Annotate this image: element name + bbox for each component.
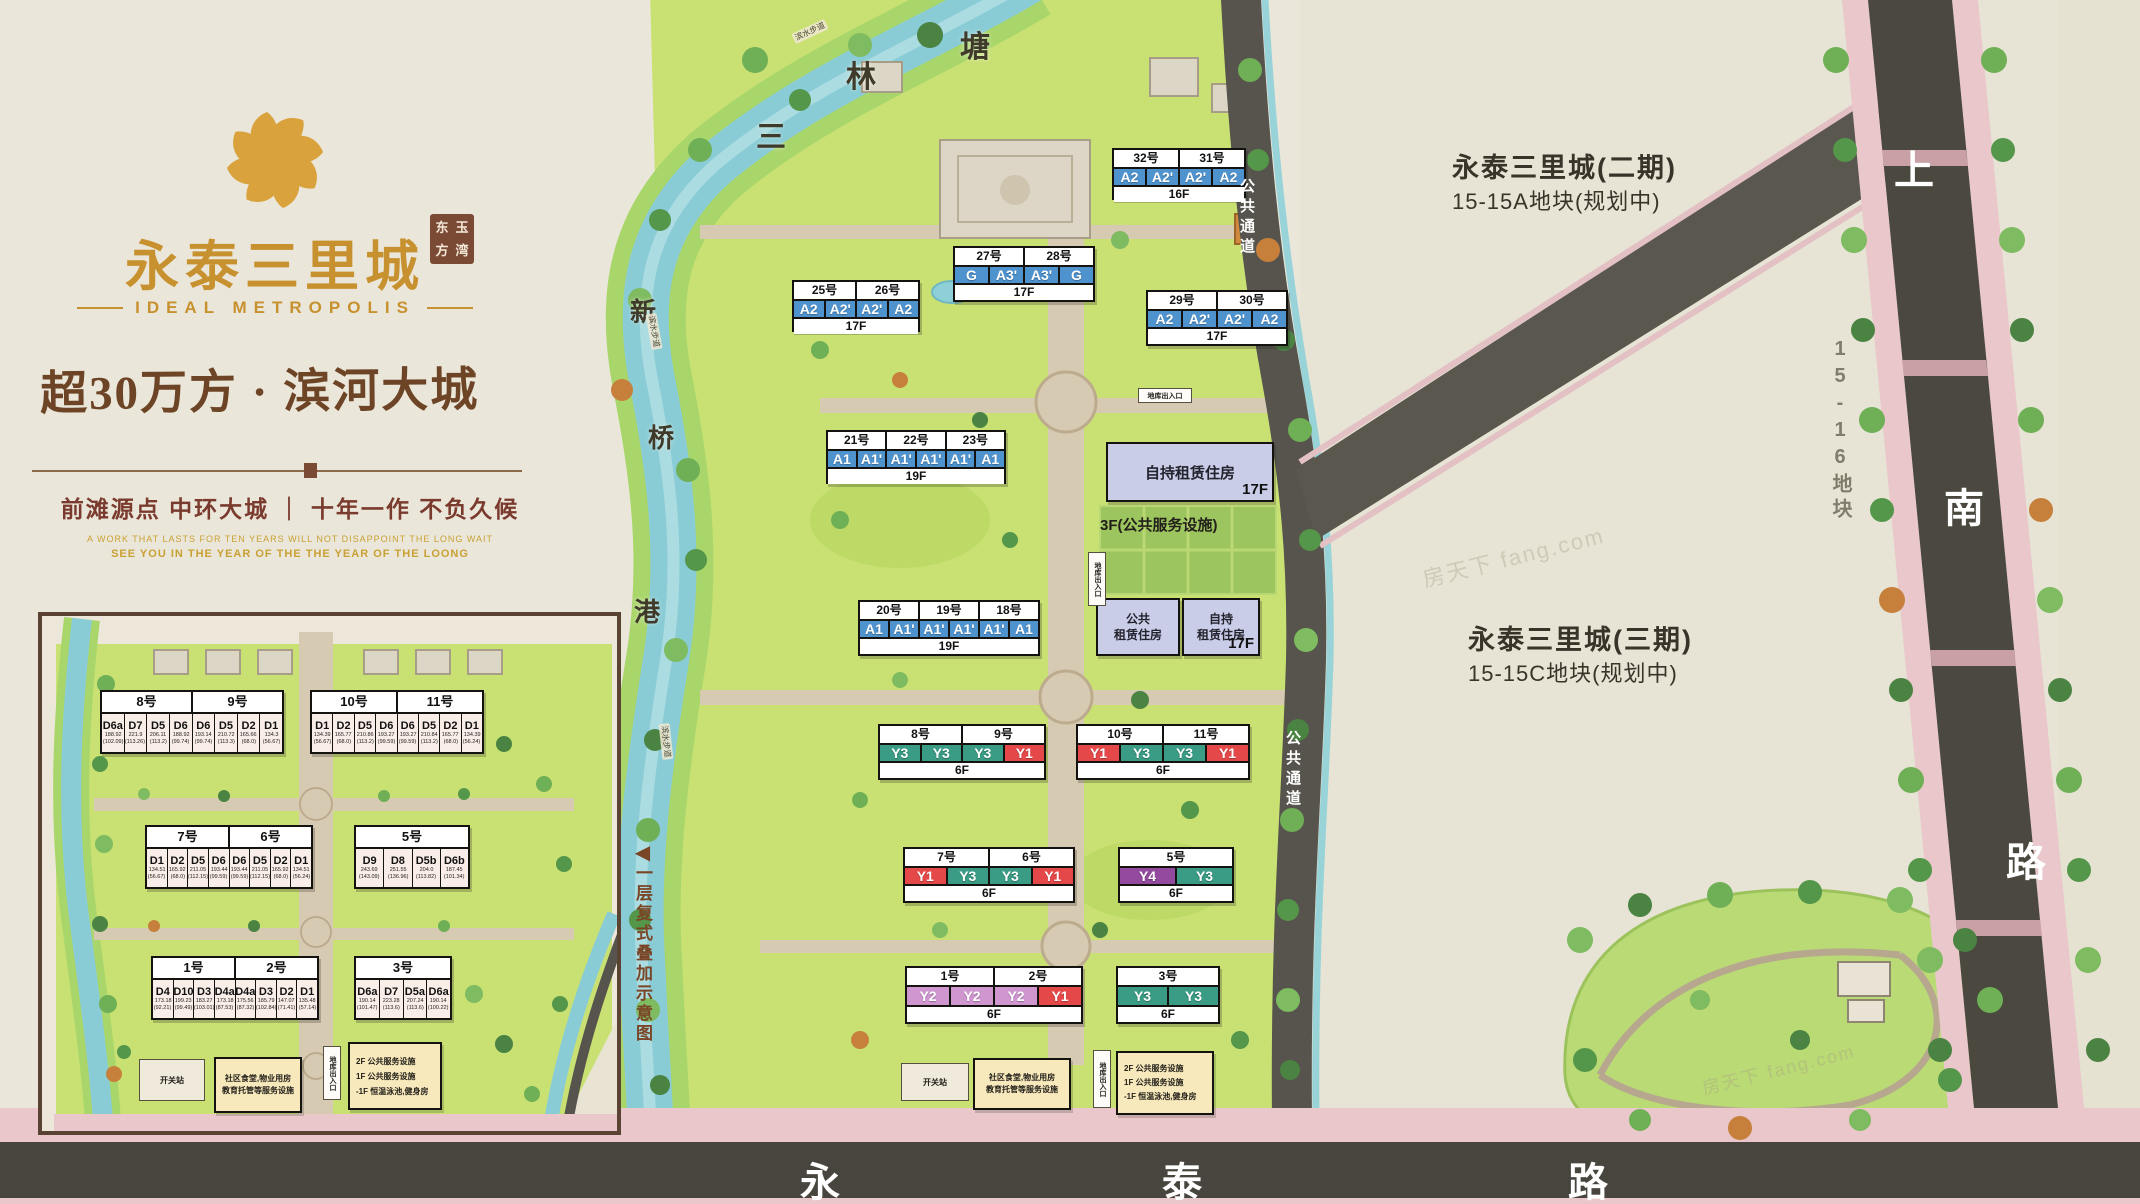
- unit-cell: G: [955, 267, 990, 283]
- seal-char: 玉: [455, 221, 468, 234]
- road-yongtai-char: 泰: [1162, 1150, 1202, 1204]
- building-number-label: 3号: [356, 958, 450, 978]
- unit-row: A2A2'A2'A2: [1148, 311, 1286, 327]
- duplex-unit-cell: D5210.84(113.2): [419, 714, 440, 752]
- service-facility: 2F 公共服务设施 1F 公共服务设施 -1F 恒温泳池,健身房: [1116, 1051, 1214, 1115]
- unit-row: D6a190.14(101.47)D7223.28(113.6)D5a207.2…: [356, 980, 450, 1018]
- unit-inner-area: (102.84): [256, 1005, 276, 1011]
- tree: [1111, 231, 1129, 249]
- branding-panel: 永泰三里城 东 玉 方 湾 IDEAL METROPOLIS 超30万方 · 滨…: [0, 0, 620, 600]
- tree: [2018, 407, 2044, 433]
- unit-area: 204.0: [419, 867, 433, 873]
- unit-type: D5: [219, 720, 233, 732]
- building-number-row: 1号2号: [907, 968, 1081, 987]
- building-number-row: 7号6号: [147, 827, 311, 849]
- unit-inner-area: (113.82): [416, 874, 436, 880]
- unit-inner-area: (99.49): [175, 1005, 192, 1011]
- duplex-unit-cell: D7221.9(113.26): [125, 714, 148, 752]
- duplex-unit-cell: D4173.18(92.21): [153, 980, 174, 1018]
- plaza-circle: [1040, 671, 1092, 723]
- public-passage-label: 公共通道: [1282, 730, 1303, 810]
- building-number-label: 7号: [147, 827, 230, 847]
- tree: [536, 776, 552, 792]
- building-block-7号-6号: 7号6号Y1Y3Y3Y16F: [903, 847, 1075, 903]
- facility-line: 社区食堂,物业用房: [989, 1072, 1055, 1084]
- unit-inner-area: (99.59): [378, 739, 395, 745]
- unit-area: 210.84: [421, 732, 438, 738]
- tree: [138, 788, 150, 800]
- tree: [2086, 1038, 2110, 1062]
- unit-area: 251.55: [389, 867, 406, 873]
- unit-row: Y2Y2Y2Y1: [907, 987, 1081, 1005]
- arrow-left-icon: ◀: [635, 842, 650, 864]
- unit-cell: Y3: [1121, 745, 1164, 761]
- unit-row: D1134.39(56.67)D2165.77(68.0)D5210.86(11…: [312, 714, 482, 752]
- duplex-unit-cell: D1134.39(56.24): [462, 714, 482, 752]
- tree: [1181, 801, 1199, 819]
- unit-type: D2: [337, 720, 351, 732]
- park-building: [1838, 962, 1890, 996]
- unit-area: 211.05: [252, 867, 268, 873]
- unit-row: Y1Y3Y3Y1: [1078, 745, 1248, 761]
- duplex-unit-cell: D2165.77(68.0): [333, 714, 354, 752]
- unit-cell: G: [1060, 267, 1093, 283]
- unit-type: D6: [196, 720, 210, 732]
- inset-community-facility: 社区食堂,物业用房 教育托管等服务设施: [214, 1057, 302, 1113]
- building-number-label: 18号: [980, 602, 1038, 619]
- road-yongtai-char: 路: [1568, 1150, 1608, 1204]
- unit-cell: Y1: [905, 868, 948, 884]
- unit-cell: A1': [980, 621, 1010, 637]
- building-number-label: 8号: [102, 692, 193, 712]
- unit-area: 165.92: [272, 867, 289, 873]
- sidewalk-south-edge: [0, 1198, 2140, 1204]
- unit-row: Y4Y3: [1120, 868, 1232, 884]
- unit-cell: A2': [826, 301, 858, 317]
- unit-cell: Y3: [963, 745, 1005, 761]
- building-number-label: 26号: [857, 282, 918, 299]
- tree: [1938, 1068, 1962, 1092]
- building-number-row: 32号31号: [1114, 150, 1244, 169]
- rental-label: 自持租赁住房: [1145, 462, 1235, 483]
- inset-building-block-3号: 3号D6a190.14(101.47)D7223.28(113.6)D5a207…: [354, 956, 452, 1020]
- duplex-unit-cell: D10199.23(99.49): [174, 980, 195, 1018]
- lotus-logo-icon: [215, 100, 335, 220]
- facility-line: 2F 公共服务设施: [356, 1054, 416, 1069]
- unit-area: 187.45: [446, 867, 463, 873]
- unit-area: 223.28: [383, 998, 400, 1004]
- tree: [1231, 1031, 1249, 1049]
- unit-inner-area: (101.34): [444, 874, 465, 880]
- tree: [1288, 418, 1312, 442]
- unit-type: D2: [274, 855, 288, 867]
- unit-row: A2A2'A2'A2: [794, 301, 918, 317]
- tree: [688, 138, 712, 162]
- building-block-21号-22号-23号: 21号22号23号A1A1'A1'A1'A1'A119F: [826, 430, 1006, 484]
- tree: [1823, 47, 1849, 73]
- unit-type: D6a: [429, 986, 449, 998]
- unit-inner-area: (68.0): [443, 739, 457, 745]
- unit-inner-area: (87.53): [216, 1005, 233, 1011]
- unit-inner-area: (56.67): [262, 739, 279, 745]
- tree: [99, 995, 117, 1013]
- tree: [495, 1035, 513, 1053]
- duplex-unit-cell: D6a190.14(100.22): [427, 980, 450, 1018]
- unit-area: 165.66: [240, 732, 257, 738]
- duplex-unit-cell: D1134.51(56.67): [147, 849, 168, 887]
- duplex-unit-cell: D2165.66(68.0): [238, 714, 261, 752]
- unit-area: 135.48: [299, 998, 316, 1004]
- building-number-label: 6号: [230, 827, 311, 847]
- unit-inner-area: (113.3): [217, 739, 234, 745]
- unit-area: 188.92: [104, 732, 121, 738]
- tree: [1798, 880, 1822, 904]
- unit-inner-area: (103.01): [194, 1005, 214, 1011]
- building-number-row: 7号6号: [905, 849, 1073, 868]
- unit-area: 190.14: [359, 998, 376, 1004]
- unit-cell: A2': [1218, 311, 1253, 327]
- tree: [636, 818, 660, 842]
- floor-label: 6F: [1118, 1005, 1218, 1022]
- unit-row: Y3Y3: [1118, 987, 1218, 1005]
- plaza-circle: [1042, 922, 1090, 970]
- building-number-label: 32号: [1114, 150, 1180, 167]
- floor-label: 6F: [1078, 761, 1248, 778]
- unit-type: D6: [212, 855, 226, 867]
- facility-line: 1F 公共服务设施: [356, 1069, 416, 1084]
- building-number-label: 31号: [1180, 150, 1244, 167]
- unit-row: GA3'A3'G: [955, 267, 1093, 283]
- slogan: 前滩源点 中环大城 ｜ 十年一作 不负久候: [10, 490, 570, 524]
- building-number-label: 8号: [880, 726, 963, 743]
- inset-service-facility: 2F 公共服务设施 1F 公共服务设施 -1F 恒温泳池,健身房: [348, 1042, 442, 1110]
- phase2-title: 永泰三里城(二期): [1452, 146, 1677, 185]
- unit-cell: A1': [920, 621, 950, 637]
- tree: [458, 788, 470, 800]
- unit-cell: A2: [889, 301, 919, 317]
- unit-area: 206.11: [150, 732, 166, 738]
- unit-inner-area: (99.59): [399, 739, 416, 745]
- tree: [1131, 691, 1149, 709]
- building-number-label: 29号: [1148, 292, 1218, 309]
- unit-type: D1: [150, 855, 164, 867]
- building-block-27号-28号: 27号28号GA3'A3'G17F: [953, 246, 1095, 302]
- building-number-label: 19号: [920, 602, 980, 619]
- facility-line: 教育托管等服务设施: [222, 1085, 294, 1097]
- floor-label: 16F: [1114, 185, 1244, 202]
- tree: [148, 920, 160, 932]
- site-plan-poster: 永泰三里城 东 玉 方 湾 IDEAL METROPOLIS 超30万方 · 滨…: [0, 0, 2140, 1204]
- building-number-label: 2号: [995, 968, 1081, 985]
- unit-cell: Y2: [907, 987, 951, 1005]
- unit-type: D6: [232, 855, 246, 867]
- inset-cross-path: [94, 798, 574, 811]
- unit-inner-area: (68.0): [241, 739, 255, 745]
- unit-type: D7: [384, 986, 398, 998]
- unit-row: Y3Y3Y3Y1: [880, 745, 1044, 761]
- garage-entrance-label: 地库出入口: [1088, 552, 1106, 606]
- unit-cell: Y3: [990, 868, 1033, 884]
- tree: [852, 792, 868, 808]
- unit-type: D2: [443, 720, 457, 732]
- rental-floor: 17F: [1228, 636, 1254, 652]
- duplex-unit-cell: D2165.92(68.0): [271, 849, 292, 887]
- tree: [1991, 138, 2015, 162]
- facility-line: 1F 公共服务设施: [1124, 1076, 1184, 1090]
- unit-cell: Y2: [951, 987, 995, 1005]
- building-number-row: 10号11号: [1078, 726, 1248, 745]
- unit-type: D5a: [405, 986, 425, 998]
- unit-area: 210.72: [217, 732, 234, 738]
- rule-left: [77, 307, 123, 309]
- duplex-unit-cell: D4a173.18(87.53): [215, 980, 236, 1018]
- unit-area: 165.77: [442, 732, 459, 738]
- facility-line: 社区食堂,物业用房: [225, 1073, 291, 1085]
- project-subtitle: IDEAL METROPOLIS: [60, 298, 490, 318]
- facility-line: -1F 恒温泳池,健身房: [1124, 1090, 1196, 1104]
- tree: [1790, 1030, 1810, 1050]
- unit-area: 183.27: [196, 998, 213, 1004]
- building-number-label: 30号: [1218, 292, 1286, 309]
- building-number-row: 3号: [356, 958, 450, 980]
- phase3-title: 永泰三里城(三期): [1468, 618, 1693, 657]
- tree: [378, 790, 390, 802]
- unit-row: D1134.51(56.67)D2165.92(68.0)D5211.05(11…: [147, 849, 311, 887]
- facility-line: 教育托管等服务设施: [986, 1084, 1058, 1096]
- building-block-29号-30号: 29号30号A2A2'A2'A217F: [1146, 290, 1288, 346]
- building-block-3号: 3号Y3Y36F: [1116, 966, 1220, 1024]
- rental-label: 公共: [1126, 611, 1150, 627]
- tree: [789, 89, 811, 111]
- unit-type: D5b: [416, 855, 437, 867]
- building-number-row: 29号30号: [1148, 292, 1286, 311]
- rental-floor: 17F: [1242, 481, 1268, 498]
- floor-label: 19F: [828, 467, 1004, 484]
- building-number-row: 27号28号: [955, 248, 1093, 267]
- inset-building-block-7号-6号: 7号6号D1134.51(56.67)D2165.92(68.0)D5211.0…: [145, 825, 313, 889]
- unit-area: 147.07: [278, 998, 295, 1004]
- duplex-unit-cell: D6b187.45(101.34): [441, 849, 468, 887]
- unit-inner-area: (56.67): [313, 739, 330, 745]
- facility-line: -1F 恒温泳池,健身房: [356, 1084, 428, 1099]
- rule-right: [427, 307, 473, 309]
- duplex-unit-cell: D1134.3(56.67): [260, 714, 282, 752]
- tree: [92, 916, 108, 932]
- building-number-label: 25号: [794, 282, 857, 299]
- tree: [664, 638, 688, 662]
- tree: [1002, 532, 1018, 548]
- river-name-char: 塘: [960, 22, 990, 66]
- building-number-label: 23号: [947, 432, 1004, 449]
- tree: [2037, 587, 2063, 613]
- tagline-en-1: A WORK THAT LASTS FOR TEN YEARS WILL NOT…: [10, 534, 570, 544]
- duplex-unit-cell: D2165.77(68.0): [440, 714, 461, 752]
- unit-type: D6a: [357, 986, 377, 998]
- building-number-label: 5号: [1120, 849, 1232, 866]
- unit-cell: Y1: [1207, 745, 1248, 761]
- building-number-row: 25号26号: [794, 282, 918, 301]
- unit-cell: Y1: [1005, 745, 1045, 761]
- duplex-unit-cell: D2147.07(71.41): [277, 980, 298, 1018]
- duplex-unit-cell: D7223.28(113.6): [380, 980, 404, 1018]
- tree: [1889, 678, 1913, 702]
- building-block-20号-19号-18号: 20号19号18号A1A1'A1'A1'A1'A119F: [858, 600, 1040, 656]
- duplex-unit-cell: D6193.14(99.74): [193, 714, 216, 752]
- unit-type: D5: [422, 720, 436, 732]
- tree: [892, 672, 908, 688]
- unit-inner-area: (99.59): [231, 874, 248, 880]
- unit-type: D1: [315, 720, 329, 732]
- building-block-25号-26号: 25号26号A2A2'A2'A217F: [792, 280, 920, 332]
- unit-type: D6: [401, 720, 415, 732]
- inset-building-block-1号-2号: 1号2号D4173.18(92.21)D10199.23(99.49)D3183…: [151, 956, 319, 1020]
- unit-cell: Y2: [995, 987, 1039, 1005]
- unit-inner-area: (99.74): [172, 739, 189, 745]
- tree: [676, 458, 700, 482]
- unit-inner-area: (113.2): [356, 739, 373, 745]
- unit-area: 185.79: [257, 998, 274, 1004]
- unit-cell: A2': [1147, 169, 1180, 185]
- building-number-label: 9号: [963, 726, 1044, 743]
- tree: [650, 1075, 670, 1095]
- unit-type: D1: [300, 986, 314, 998]
- duplex-unit-cell: D6193.27(99.59): [398, 714, 419, 752]
- unit-cell: A2: [1253, 311, 1286, 327]
- unit-area: 190.14: [430, 998, 447, 1004]
- building-number-row: 1号2号: [153, 958, 317, 980]
- garage-entrance-label: 地库出入口: [1138, 388, 1192, 403]
- river-name-char: 桥: [648, 418, 674, 455]
- unit-cell: A1: [860, 621, 890, 637]
- unit-inner-area: (113.26): [125, 739, 145, 745]
- headline: 超30万方 · 滨河大城: [40, 350, 601, 424]
- tree: [1299, 529, 1321, 551]
- unit-inner-area: (68.0): [336, 739, 350, 745]
- tree: [1280, 1060, 1300, 1080]
- river-name-char: 港: [634, 592, 660, 629]
- brand-seal: 东 玉 方 湾: [430, 214, 474, 264]
- duplex-unit-cell: D6193.27(99.59): [376, 714, 397, 752]
- unit-inner-area: (56.24): [463, 739, 480, 745]
- unit-inner-area: (101.47): [357, 1005, 378, 1011]
- tree: [1092, 922, 1108, 938]
- unit-cell: A1: [1010, 621, 1038, 637]
- tree: [1277, 899, 1299, 921]
- unit-inner-area: (112.15): [250, 874, 270, 880]
- building-number-label: 9号: [193, 692, 282, 712]
- unit-cell: Y3: [1164, 745, 1207, 761]
- building-number-row: 5号: [356, 827, 468, 849]
- inset-note-text: 一层复式叠加示意图: [630, 864, 655, 1044]
- divider-seal: [304, 463, 317, 478]
- garage-entrance-label: 地库出入口: [1093, 1050, 1111, 1108]
- tree: [1573, 1048, 1597, 1072]
- tree: [1879, 587, 1905, 613]
- unit-cell: A2: [1114, 169, 1147, 185]
- unit-area: 175.56: [237, 998, 254, 1004]
- unit-type: D3: [197, 986, 211, 998]
- floor-label: 17F: [1148, 327, 1286, 344]
- floor-label: 6F: [905, 884, 1073, 901]
- building-number-label: 27号: [955, 248, 1025, 265]
- duplex-unit-cell: D4a175.56(87.32): [236, 980, 257, 1018]
- duplex-unit-cell: D3183.27(103.01): [194, 980, 215, 1018]
- building-number-row: 3号: [1118, 968, 1218, 987]
- phase2-subtitle: 15-15A地块(规划中): [1452, 184, 1661, 216]
- unit-type: D9: [363, 855, 377, 867]
- inset-building-block-8号-9号: 8号9号D6a188.92(102.09)D7221.9(113.26)D520…: [100, 690, 284, 754]
- tree: [1567, 927, 1593, 953]
- unit-cell: Y3: [1118, 987, 1169, 1005]
- unit-type: D6a: [103, 720, 123, 732]
- building-number-row: 10号11号: [312, 692, 482, 714]
- unit-row: D4173.18(92.21)D10199.23(99.49)D3183.27(…: [153, 980, 317, 1018]
- tree: [1276, 988, 1300, 1012]
- building-number-label: 11号: [1164, 726, 1248, 743]
- floor-label: 17F: [794, 317, 918, 334]
- tree: [1707, 882, 1733, 908]
- duplex-unit-cell: D6193.44(99.59): [230, 849, 251, 887]
- tree: [1628, 893, 1652, 917]
- unit-area: 193.14: [195, 732, 212, 738]
- duplex-unit-cell: D1134.51(56.24): [291, 849, 311, 887]
- unit-type: D5: [191, 855, 205, 867]
- unit-area: 193.27: [399, 732, 416, 738]
- unit-type: D5: [253, 855, 267, 867]
- duplex-unit-cell: D5b204.0(113.82): [413, 849, 441, 887]
- building-number-label: 21号: [828, 432, 887, 449]
- road-shangnan-char: 路: [2006, 830, 2046, 888]
- tree: [1898, 767, 1924, 793]
- unit-area: 211.05: [190, 867, 206, 873]
- unit-area: 134.51: [148, 867, 165, 873]
- unit-inner-area: (113.2): [421, 739, 438, 745]
- tree: [1294, 628, 1318, 652]
- unit-row: A2A2'A2'A2: [1114, 169, 1244, 185]
- unit-type: D6: [379, 720, 393, 732]
- unit-inner-area: (56.24): [292, 874, 309, 880]
- plaza-circle: [1036, 372, 1096, 432]
- unit-cell: Y3: [1177, 868, 1232, 884]
- inset-plaza: [300, 788, 332, 820]
- unit-cell: Y3: [880, 745, 922, 761]
- unit-inner-area: (102.09): [103, 739, 124, 745]
- unit-type: D10: [174, 986, 194, 998]
- switch-station: 开关站: [901, 1063, 969, 1101]
- duplex-unit-cell: D1134.39(56.67): [312, 714, 333, 752]
- tree: [524, 1086, 540, 1102]
- phase3-subtitle: 15-15C地块(规划中): [1468, 656, 1678, 688]
- unit-cell: A3': [990, 267, 1025, 283]
- floor-label: 6F: [907, 1005, 1081, 1022]
- unit-inner-area: (56.67): [148, 874, 165, 880]
- unit-area: 193.44: [231, 867, 248, 873]
- seal-char: 东: [435, 221, 448, 234]
- building-block-8号-9号: 8号9号Y3Y3Y3Y16F: [878, 724, 1046, 780]
- inset-garage-label: 地库出入口: [323, 1046, 341, 1100]
- unit-area: 134.39: [463, 732, 480, 738]
- tree: [496, 736, 512, 752]
- tree: [1256, 238, 1280, 262]
- unit-area: 207.24: [406, 998, 423, 1004]
- tree: [1908, 858, 1932, 882]
- unit-area: 173.18: [154, 998, 171, 1004]
- unit-area: 134.51: [293, 867, 310, 873]
- tree: [1917, 947, 1943, 973]
- unit-area: 173.18: [216, 998, 233, 1004]
- service-building: [1150, 58, 1198, 96]
- unit-area: 199.23: [175, 998, 192, 1004]
